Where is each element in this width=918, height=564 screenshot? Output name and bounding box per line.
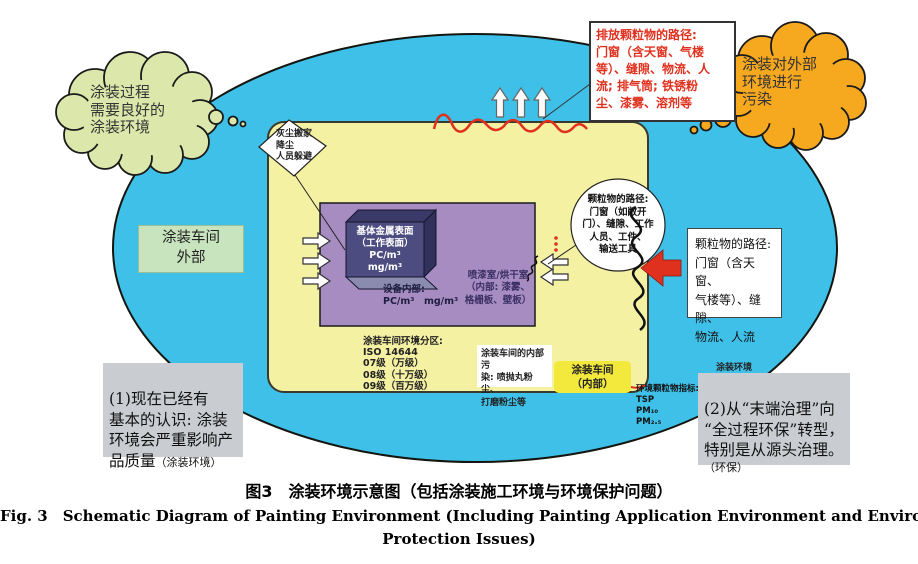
spray-dry-room-label: 喷漆室/烘干室 （内部: 漆雾、 格栅板、壁板） (452, 270, 544, 307)
insight1-box: (1)现在已经有 基本的认识: 涂装 环境会严重影响产 品质量（涂装环境） (103, 363, 243, 457)
leak-dots (554, 236, 558, 252)
workshop-outside-label: 涂装车间 外部 (138, 225, 244, 273)
insight2-text: (2)从“末端治理”向 “全过程环保”转型， 特别是从源头治理。 (704, 400, 844, 460)
particle-path-box: 颗粒物的路径: 门窗（含天窗、 气楼等）、缝隙、 物流、人流 (687, 228, 782, 318)
thought-bubble (691, 127, 698, 134)
figure-caption-en-line2: Protection Issues) (0, 530, 918, 548)
box-side-face (424, 210, 436, 277)
internal-pollution-note: 涂装车间的内部污 染: 喷抛丸粉尘、 打磨粉尘等 (477, 345, 552, 387)
red-dot (554, 248, 558, 252)
right-thought-text: 涂装对外部 环境进行 污染 (742, 56, 852, 109)
insight1-note: （涂装环境） (156, 456, 222, 469)
insight2-box: (2)从“末端治理”向 “全过程环保”转型， 特别是从源头治理。（环保） (698, 373, 850, 465)
red-dot (554, 236, 558, 240)
workshop-inner-label: 涂装车间 （内部） (554, 361, 631, 393)
figure-caption-cn: 图3 涂装环境示意图（包括涂装施工环境与环境保护问题） (0, 478, 918, 502)
painting-environment-diagram: 排放颗粒物的路径: 门窗（含天窗、气楼 等）、缝隙、物流、人 流; 排气筒; 铁… (0, 0, 918, 564)
dust-note-text: 灰尘搬家 降尘 人员躲避 (276, 129, 342, 164)
insight2-note: （环保） (704, 461, 844, 476)
thought-bubble (241, 122, 246, 127)
left-thought-text: 涂装过程 需要良好的 涂装环境 (90, 84, 212, 137)
red-dot (554, 242, 558, 246)
box-top-face (346, 210, 436, 222)
env-label: 涂装环境 (716, 360, 776, 373)
emission-path-note: 排放颗粒物的路径: 门窗（含天窗、气楼 等）、缝隙、物流、人 流; 排气筒; 铁… (589, 21, 736, 122)
cleanliness-zoning-label: 涂装车间环境分区: ISO 14644 07级（万级） 08级（十万级） 09级… (363, 336, 471, 392)
inlet-arrows (303, 233, 330, 289)
thought-bubble (229, 117, 238, 126)
figure-caption-en-line1: Fig. 3 Schematic Diagram of Painting Env… (0, 505, 918, 526)
particle-path-circle-text: 颗粒物的路径: 门窗（如敞开 门）、缝隙、工作 人员、工件、 输送工具 (578, 194, 658, 257)
substrate-surface-label: 基体金属表面 （工作表面） PC/m³ mg/m³ (346, 226, 424, 274)
emission-arrows (492, 88, 550, 117)
